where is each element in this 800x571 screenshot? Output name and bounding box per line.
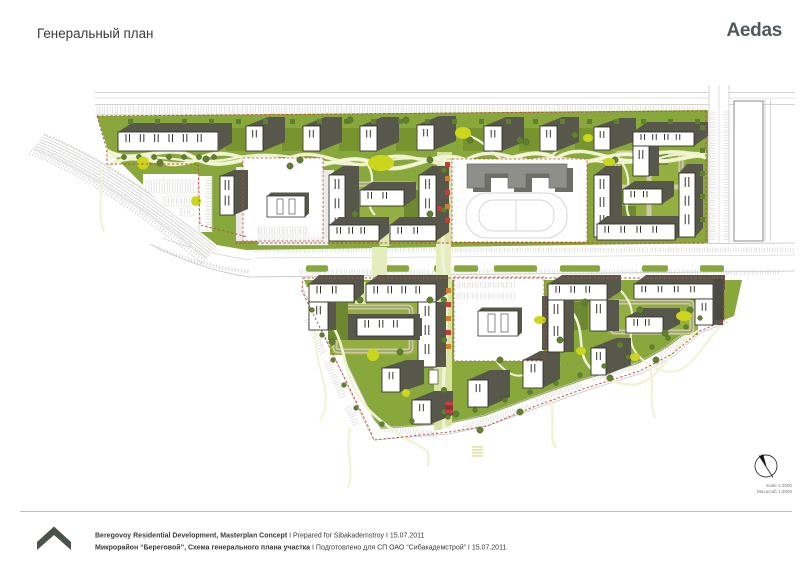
svg-text:Beregovoy Residential Developm: Beregovoy Residential Development, Maste… [95,533,425,540]
svg-text:Aedas: Aedas [726,20,782,41]
svg-text:scale 1:2500: scale 1:2500 [766,483,792,488]
svg-text:Генеральный план: Генеральный план [37,26,153,41]
svg-text:Микрорайон “Береговой”, Схема: Микрорайон “Береговой”, Схема генерально… [95,544,506,552]
svg-text:Масштаб 1:2500: Масштаб 1:2500 [757,489,792,494]
